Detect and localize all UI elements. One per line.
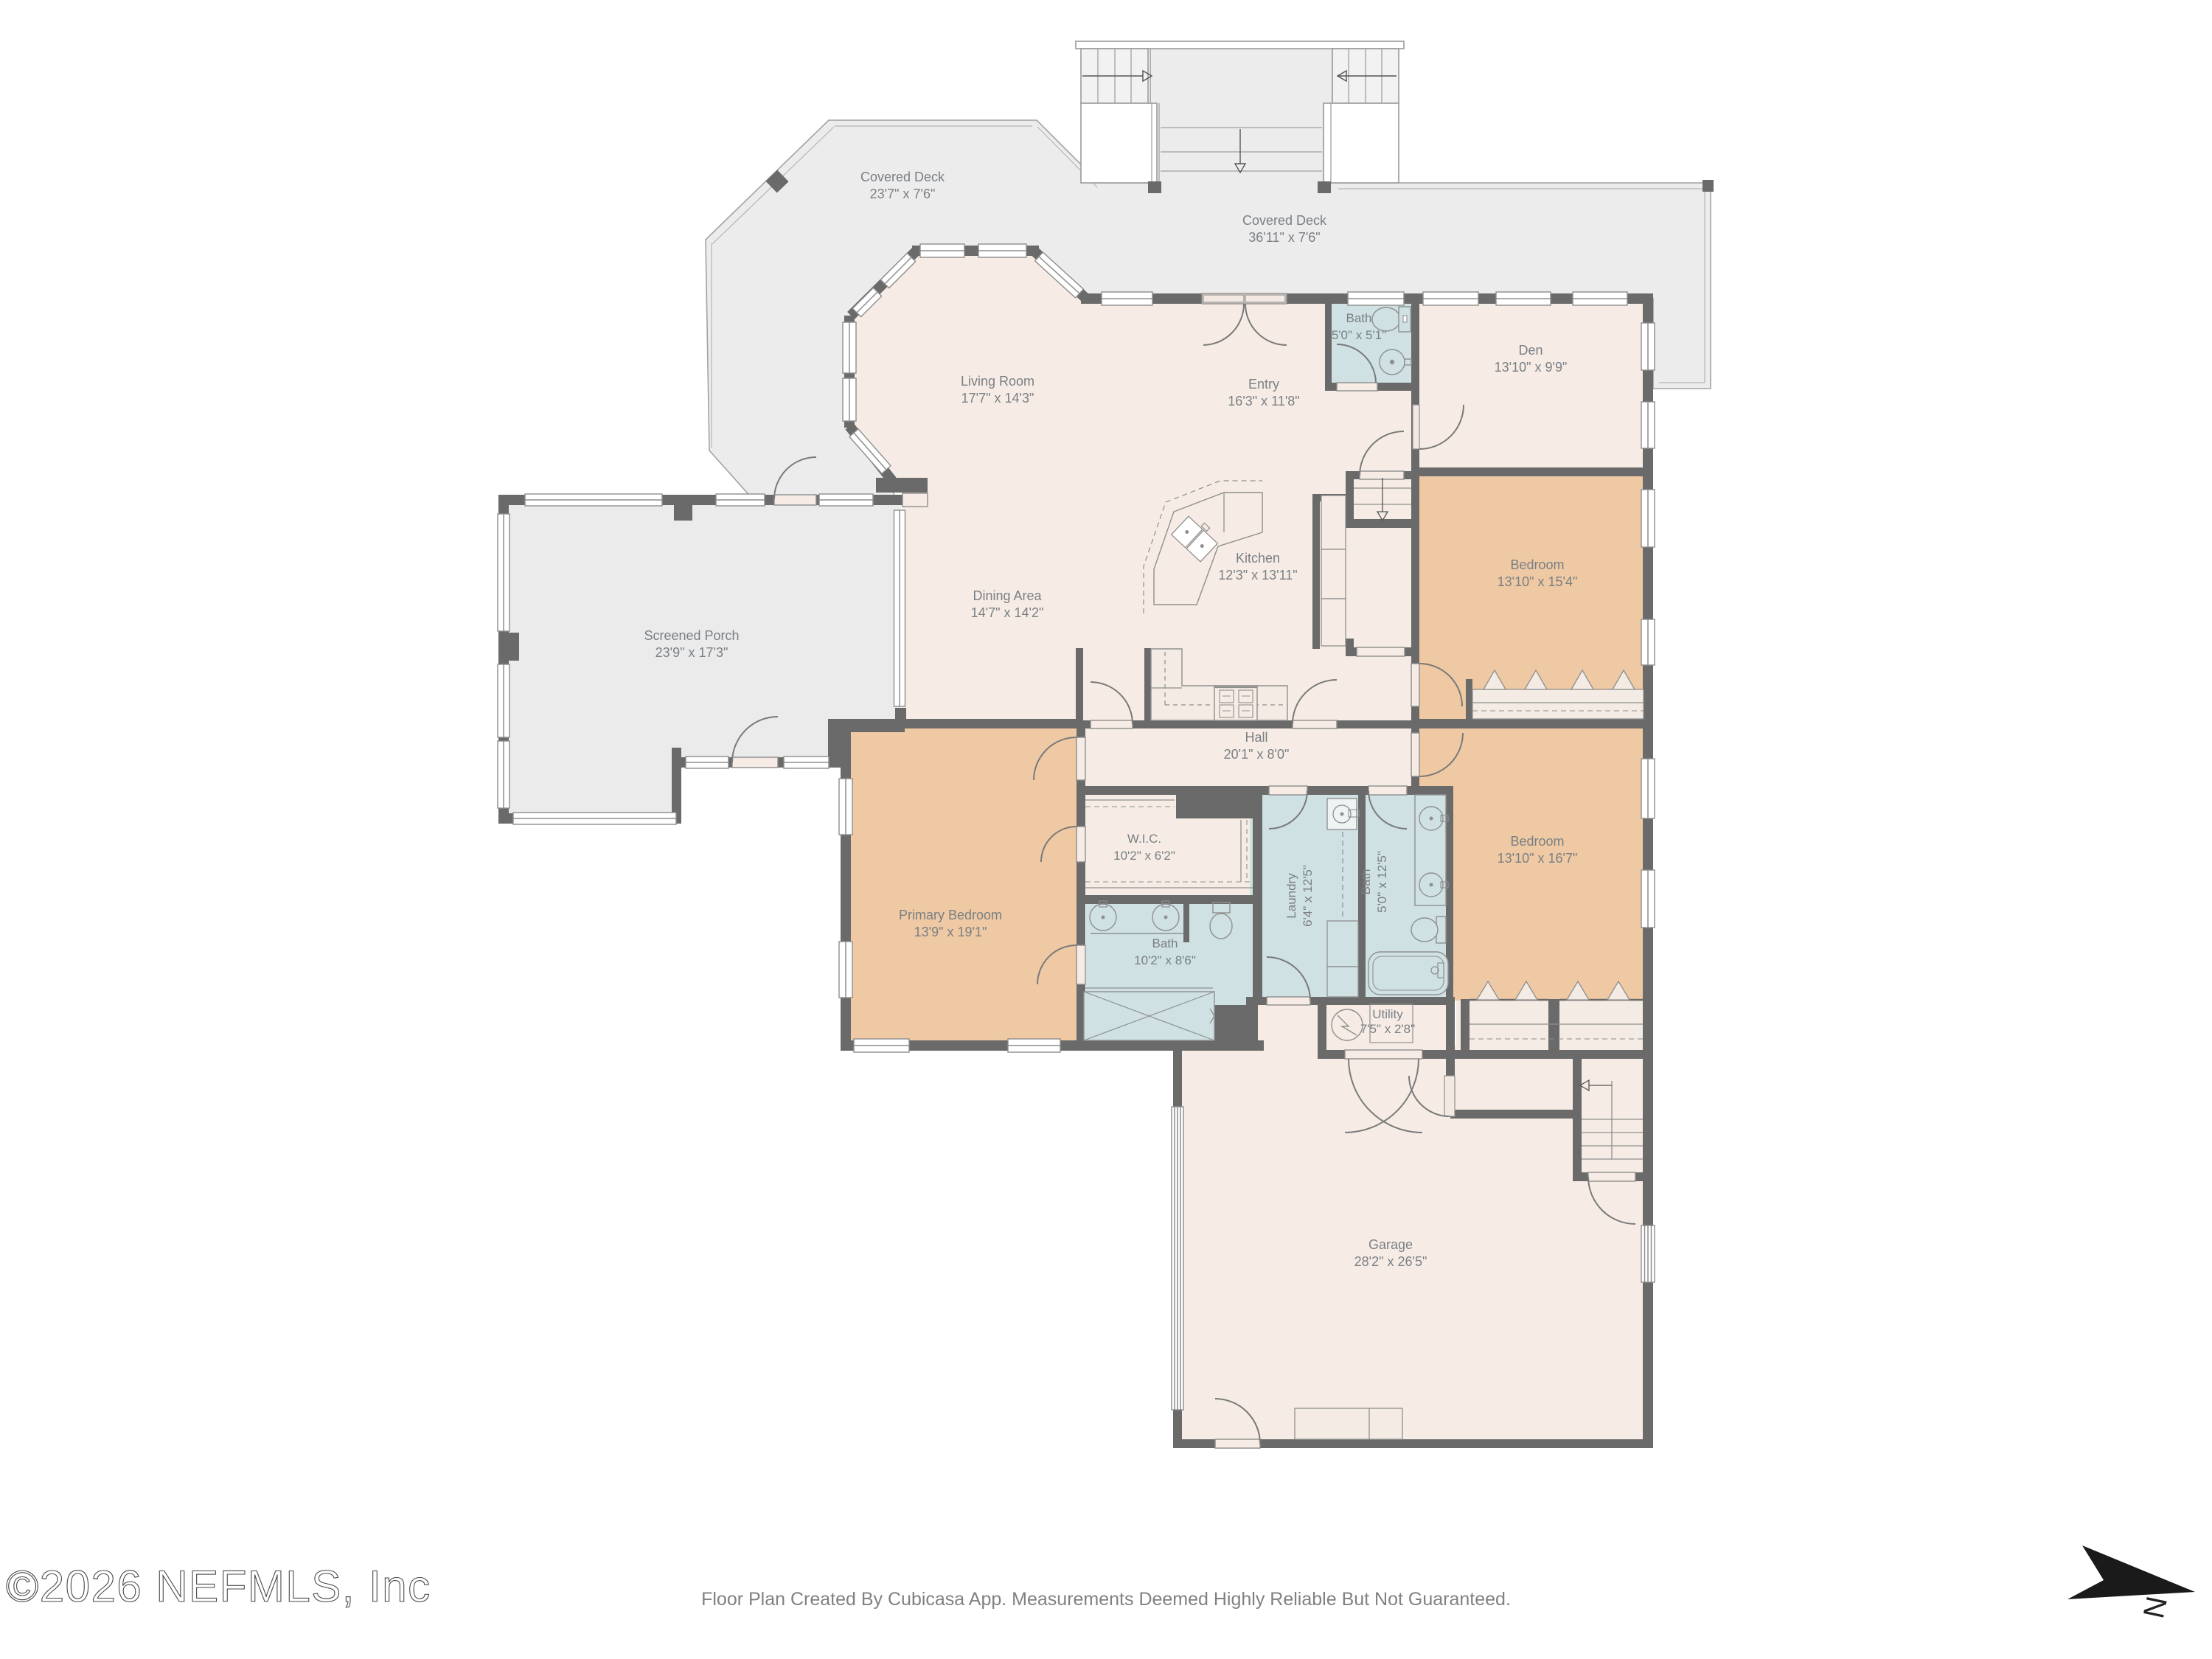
svg-text:Screened Porch: Screened Porch [644,628,739,643]
svg-text:17'7" x 14'3": 17'7" x 14'3" [961,391,1034,406]
svg-text:10'2" x 8'6": 10'2" x 8'6" [1134,953,1196,967]
svg-text:5'0" x 5'1": 5'0" x 5'1" [1332,328,1386,342]
svg-text:Den: Den [1518,343,1543,358]
svg-text:Floor Plan Created By Cubicasa: Floor Plan Created By Cubicasa App. Meas… [701,1589,1511,1610]
svg-text:10'2" x 6'2": 10'2" x 6'2" [1113,849,1175,863]
svg-text:36'11" x 7'6": 36'11" x 7'6" [1248,230,1320,245]
svg-text:6'4" x 12'5": 6'4" x 12'5" [1301,865,1315,927]
svg-text:Bath: Bath [1359,869,1373,895]
svg-text:Hall: Hall [1245,730,1267,745]
svg-text:20'1" x 8'0": 20'1" x 8'0" [1224,747,1290,762]
svg-text:13'10" x 15'4": 13'10" x 15'4" [1498,574,1578,589]
svg-text:Bedroom: Bedroom [1510,557,1564,572]
svg-text:13'10" x 16'7": 13'10" x 16'7" [1498,851,1578,866]
svg-text:Covered Deck: Covered Deck [860,170,945,184]
svg-text:28'2" x 26'5": 28'2" x 26'5" [1354,1254,1427,1269]
svg-text:Primary Bedroom: Primary Bedroom [899,908,1002,922]
svg-text:Kitchen: Kitchen [1236,551,1280,566]
svg-text:5'0" x 12'5": 5'0" x 12'5" [1375,851,1389,913]
svg-text:14'7" x 14'2": 14'7" x 14'2" [971,605,1044,620]
svg-text:W.I.C.: W.I.C. [1127,832,1161,846]
svg-text:Garage: Garage [1368,1237,1413,1252]
svg-text:13'9" x 19'1": 13'9" x 19'1" [914,925,987,939]
svg-text:Living Room: Living Room [961,374,1034,389]
svg-text:©2026 NEFMLS, Inc: ©2026 NEFMLS, Inc [6,1562,431,1611]
svg-text:16'3" x 11'8": 16'3" x 11'8" [1228,394,1299,408]
svg-text:Dining Area: Dining Area [973,588,1042,603]
svg-text:Bath: Bath [1152,936,1178,950]
svg-text:7'5" x 2'8": 7'5" x 2'8" [1360,1022,1415,1036]
svg-text:Laundry: Laundry [1284,873,1298,919]
svg-text:Utility: Utility [1372,1007,1403,1021]
svg-text:23'9" x 17'3": 23'9" x 17'3" [655,645,728,660]
svg-text:12'3" x 13'11": 12'3" x 13'11" [1218,568,1297,582]
svg-text:Covered Deck: Covered Deck [1242,213,1327,228]
svg-text:Entry: Entry [1248,377,1279,392]
svg-text:Bath: Bath [1346,311,1372,325]
svg-text:23'7" x 7'6": 23'7" x 7'6" [870,187,936,201]
svg-text:13'10" x 9'9": 13'10" x 9'9" [1495,360,1568,375]
svg-text:Bedroom: Bedroom [1510,834,1564,849]
